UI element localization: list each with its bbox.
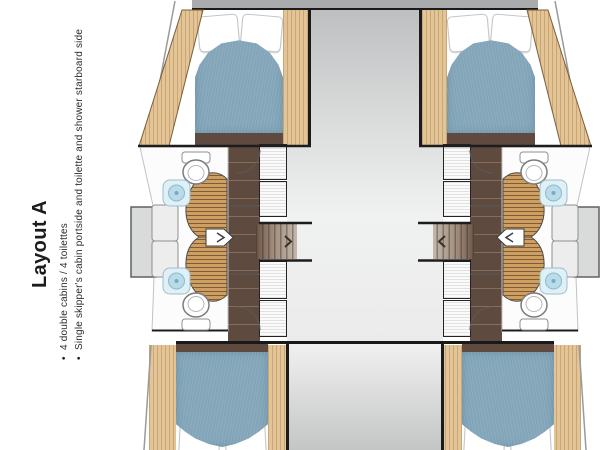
shower-teak-grating [186, 173, 227, 237]
washbasin-drain [175, 191, 179, 195]
floor-plan [130, 0, 600, 450]
fwd-bulkhead-line [308, 10, 311, 146]
outboard-locker [552, 241, 578, 277]
aft-bulkhead-line [286, 343, 289, 450]
aft-double-bed [176, 352, 268, 450]
fwd-bulkhead-line [419, 10, 422, 146]
aft-bulkhead-wall [176, 341, 554, 344]
bathroom-floor [502, 147, 590, 331]
washbasin-bowl [546, 185, 562, 201]
hatch-arrow-icon [217, 233, 224, 242]
feature-list: 4 double cabins / 4 toilettes Single ski… [59, 8, 85, 360]
aft-cabin-outer-wall [554, 345, 581, 450]
toilet-bowl [521, 293, 547, 317]
wardrobe-locker [259, 181, 287, 217]
washbasin-drain [552, 279, 556, 283]
port-hull [130, 0, 330, 450]
forward-double-bed [195, 12, 283, 133]
outboard-step [131, 207, 156, 277]
hull-outline [148, 1, 175, 144]
feature-cabins: 4 double cabins / 4 toilettes [59, 8, 70, 360]
washbasin-drain [552, 191, 556, 195]
toilet-bowl [183, 293, 209, 317]
shower-teak-grating [503, 237, 544, 301]
aft-cabin-inner-wall [268, 345, 288, 450]
fwd-cabin-inner-wall [422, 10, 447, 146]
wardrobe-locker [443, 144, 471, 180]
bow-side-deck [139, 10, 203, 146]
washbasin [540, 180, 567, 206]
washbasin-bowl [169, 185, 185, 201]
caption-block: Layout A 4 double cabins / 4 toilettes S… [30, 8, 89, 360]
mattress-blanket [462, 352, 554, 447]
bathroom-floor [140, 147, 228, 331]
washbasin-drain [175, 279, 179, 283]
companionway-steps [433, 224, 474, 259]
outboard-locker [152, 241, 178, 277]
bow-side-deck [527, 10, 591, 146]
washbasin [163, 268, 190, 294]
catamaran-layout-page: Layout A 4 double cabins / 4 toilettes S… [0, 0, 600, 450]
wardrobe-locker [443, 300, 471, 337]
aft-cabin-inner-wall [442, 345, 462, 450]
toilet-tank [520, 319, 548, 330]
outboard-locker [552, 205, 578, 241]
wardrobe-locker [259, 144, 287, 180]
forward-double-bed [447, 12, 535, 133]
hatch-arrow-icon [506, 233, 513, 242]
wardrobe-locker [259, 261, 287, 299]
toilet-seat [526, 297, 542, 312]
toilet-seat [526, 166, 542, 181]
shower-teak-grating [503, 173, 544, 237]
hull-corridor-floor [470, 146, 502, 343]
outboard-step [574, 207, 599, 277]
toilet-bowl [521, 160, 547, 184]
wardrobe-locker [259, 300, 287, 337]
aft-bulkhead-line [441, 343, 444, 450]
washbasin [540, 268, 567, 294]
companionway-steps [256, 224, 297, 259]
starboard-hull [400, 0, 600, 450]
toilet-tank [182, 319, 210, 330]
wardrobe-locker [443, 181, 471, 217]
layout-title: Layout A [30, 8, 50, 288]
toilet-seat [188, 297, 204, 312]
washbasin-bowl [169, 273, 185, 289]
toilet-tank [520, 152, 548, 163]
washbasin [163, 180, 190, 206]
feature-skipper-cabin: Single skipper's cabin portside and toil… [74, 8, 85, 360]
mattress-blanket [176, 352, 268, 447]
hull-outline [555, 1, 582, 144]
wardrobe-locker [443, 261, 471, 299]
aft-cabin-outer-wall [149, 345, 176, 450]
aft-double-bed [462, 352, 554, 450]
shower-teak-grating [186, 237, 227, 301]
toilet-tank [182, 152, 210, 163]
toilet-seat [188, 166, 204, 181]
washbasin-bowl [546, 273, 562, 289]
outboard-locker [152, 205, 178, 241]
fwd-cabin-inner-wall [283, 10, 308, 146]
toilet-bowl [183, 160, 209, 184]
